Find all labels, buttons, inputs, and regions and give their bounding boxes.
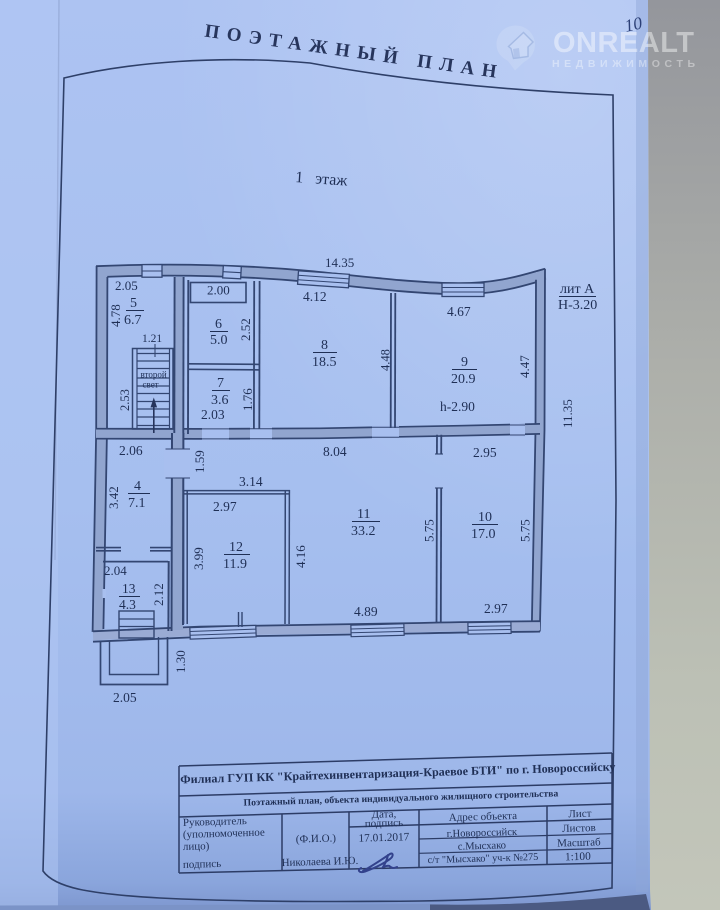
svg-text:г.Новороссийск: г.Новороссийск: [447, 827, 519, 840]
svg-text:2.03: 2.03: [201, 407, 225, 422]
svg-text:с.Мысхако: с.Мысхако: [458, 840, 507, 852]
svg-text:2.12: 2.12: [151, 583, 166, 606]
svg-text:9: 9: [461, 355, 468, 370]
svg-text:12: 12: [229, 540, 243, 555]
svg-text:3.6: 3.6: [211, 393, 229, 408]
svg-text:2.97: 2.97: [484, 601, 508, 616]
svg-text:17.0: 17.0: [471, 527, 496, 542]
svg-text:2.00: 2.00: [207, 283, 230, 298]
svg-text:1.59: 1.59: [192, 450, 207, 473]
svg-text:Н-3.20: Н-3.20: [558, 298, 597, 313]
svg-text:18.5: 18.5: [312, 355, 337, 370]
svg-text:2.06: 2.06: [119, 443, 143, 458]
svg-text:Лист: Лист: [568, 808, 592, 821]
svg-text:13: 13: [122, 581, 136, 596]
svg-text:4.67: 4.67: [447, 304, 471, 319]
svg-text:Листов: Листов: [562, 822, 596, 835]
svg-text:11: 11: [357, 507, 370, 522]
svg-text:4.48: 4.48: [379, 349, 393, 371]
svg-text:7.1: 7.1: [128, 496, 146, 511]
svg-text:1.21: 1.21: [142, 333, 162, 345]
svg-text:4: 4: [134, 479, 141, 494]
svg-text:5: 5: [130, 296, 137, 311]
svg-text:лицо): лицо): [183, 840, 210, 853]
svg-text:1:100: 1:100: [565, 851, 591, 864]
svg-text:5.75: 5.75: [518, 519, 533, 542]
svg-text:2.04: 2.04: [104, 563, 127, 578]
svg-text:11.9: 11.9: [223, 557, 247, 572]
svg-text:свет: свет: [143, 380, 159, 390]
svg-text:Николаева И.Ю.: Николаева И.Ю.: [281, 855, 358, 869]
svg-text:подпись: подпись: [365, 817, 404, 830]
svg-text:ONREALT: ONREALT: [553, 27, 695, 59]
svg-text:11.35: 11.35: [560, 399, 575, 428]
svg-text:4.16: 4.16: [293, 545, 308, 568]
svg-text:4.12: 4.12: [303, 289, 327, 304]
svg-text:4.89: 4.89: [354, 604, 378, 619]
svg-text:Масштаб: Масштаб: [557, 836, 601, 849]
svg-text:2.05: 2.05: [115, 278, 138, 293]
svg-text:7: 7: [217, 376, 224, 391]
svg-text:14.35: 14.35: [325, 255, 354, 270]
svg-text:4.3: 4.3: [119, 597, 136, 612]
svg-text:1.30: 1.30: [173, 650, 188, 673]
svg-text:лит А: лит А: [560, 282, 595, 297]
svg-text:1.76: 1.76: [240, 388, 255, 411]
svg-text:33.2: 33.2: [351, 524, 376, 539]
svg-text:8: 8: [321, 338, 328, 353]
svg-text:17.01.2017: 17.01.2017: [358, 831, 410, 845]
svg-text:НЕДВИЖИМОСТЬ: НЕДВИЖИМОСТЬ: [552, 58, 700, 70]
svg-text:Адрес объекта: Адрес объекта: [449, 810, 518, 824]
svg-text:20.9: 20.9: [451, 372, 476, 387]
svg-text:5.75: 5.75: [422, 519, 437, 542]
svg-text:2.05: 2.05: [113, 690, 137, 705]
svg-text:4.47: 4.47: [517, 355, 532, 378]
svg-text:2.52: 2.52: [238, 318, 253, 341]
svg-text:h-2.90: h-2.90: [440, 399, 475, 414]
svg-text:5.0: 5.0: [210, 333, 228, 348]
svg-text:10: 10: [478, 510, 492, 525]
svg-text:второй: второй: [141, 370, 167, 380]
svg-text:6: 6: [215, 317, 222, 332]
svg-text:(Ф.И.О.): (Ф.И.О.): [296, 832, 337, 845]
svg-text:подпись: подпись: [183, 858, 222, 871]
svg-text:2.95: 2.95: [473, 445, 497, 460]
svg-text:(уполномоченное: (уполномоченное: [183, 827, 265, 841]
svg-text:6.7: 6.7: [124, 313, 142, 328]
svg-text:3.99: 3.99: [191, 547, 206, 570]
svg-text:8.04: 8.04: [323, 444, 347, 459]
svg-text:2.53: 2.53: [118, 389, 132, 411]
svg-text:4.78: 4.78: [108, 304, 123, 327]
svg-text:3.14: 3.14: [239, 474, 263, 489]
svg-text:3.42: 3.42: [106, 486, 121, 509]
svg-text:2.97: 2.97: [213, 499, 237, 514]
